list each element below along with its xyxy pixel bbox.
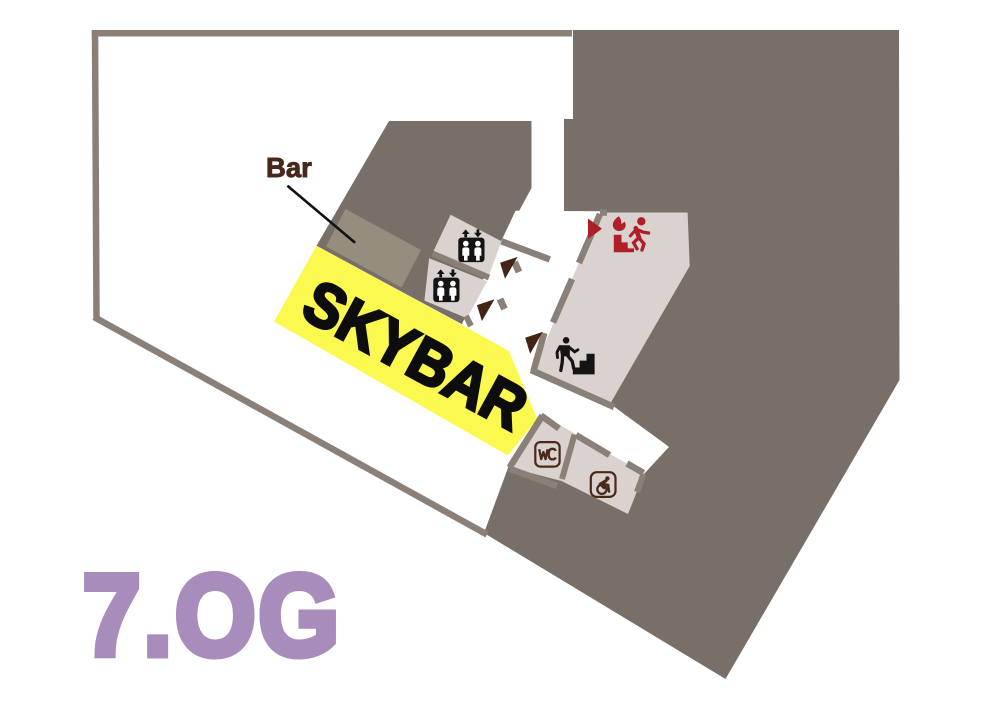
svg-text:7.OG: 7.OG <box>83 552 342 680</box>
svg-text:Bar: Bar <box>266 152 312 183</box>
